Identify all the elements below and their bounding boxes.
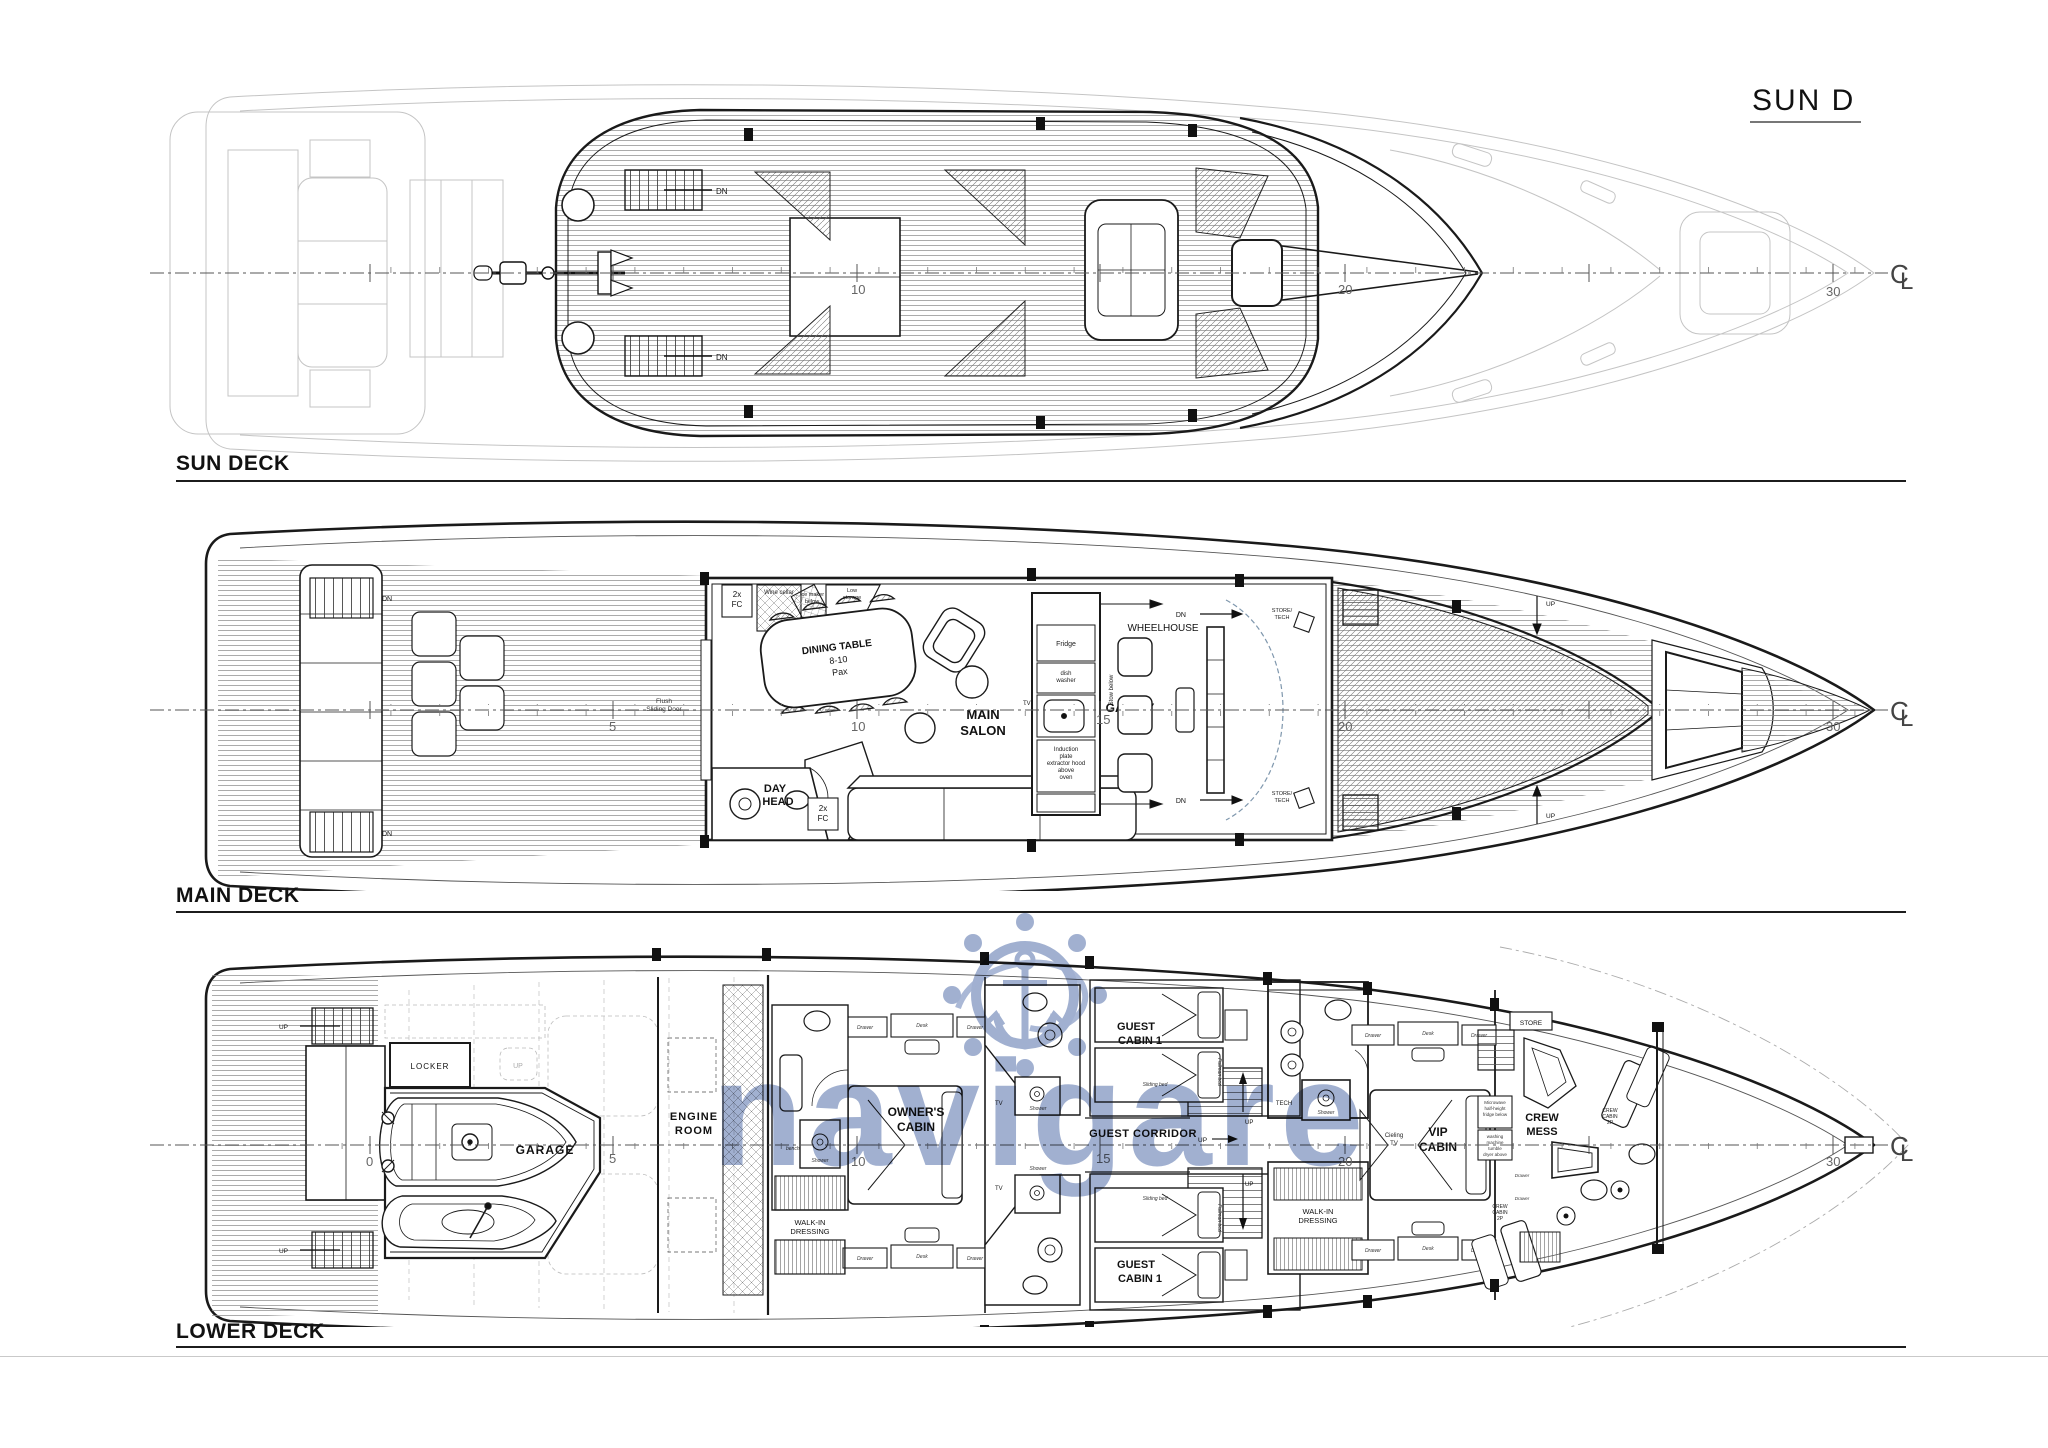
induction-label: oven — [1059, 775, 1072, 781]
tick-label: 30 — [1826, 284, 1840, 299]
day-head-label: DAY — [764, 783, 787, 795]
centerline-symbol: C L — [1890, 259, 1913, 295]
deck-plan-sheet: DN DN 10 20 30 C L SUN DECK — [0, 0, 2048, 1448]
svg-text:FC: FC — [818, 814, 829, 823]
main-deck-drawing: DN DN Flush Sliding Door 2x FC Wine cell… — [0, 495, 2048, 891]
tick-label: 5 — [609, 719, 616, 734]
svg-text:Drawer: Drawer — [1365, 1248, 1381, 1254]
svg-text:UP: UP — [279, 1248, 288, 1255]
up-label: UP — [1546, 813, 1555, 820]
wine-cellar-label: Wine cellar — [764, 590, 794, 596]
induction-label: extractor hood — [1047, 761, 1085, 767]
store-tech-label: STORE/ — [1272, 608, 1293, 614]
fc-label: FC — [732, 600, 743, 609]
tick-label: 30 — [1826, 719, 1840, 734]
ice-maker-label: Ice maker — [800, 592, 824, 598]
guest-cabin-label: CABIN 1 — [1118, 1273, 1162, 1285]
store-tech-label: TECH — [1275, 615, 1290, 621]
store-tech-label: STORE/ — [1272, 791, 1293, 797]
tick-label: 10 — [851, 719, 865, 734]
sun-deck-drawing: DN DN 10 20 30 C L — [0, 60, 2048, 462]
svg-text:2x: 2x — [819, 804, 827, 813]
lower-deck-title: LOWER DECK — [176, 1320, 325, 1344]
day-head-label: HEAD — [762, 796, 793, 808]
tick-label: 20 — [1338, 719, 1352, 734]
sun-dn-label: DN — [716, 187, 728, 196]
stow-below-label: Stow below — [1109, 674, 1115, 705]
main-dn-label: DN — [382, 596, 392, 603]
centerline-symbol: C L — [1890, 696, 1913, 732]
dn-label: DN — [1176, 612, 1186, 619]
up-label: UP — [1546, 601, 1555, 608]
store-tech-label: TECH — [1275, 798, 1290, 804]
dining-table-label: Pax — [832, 666, 849, 678]
guest-cabin-label: GUEST — [1117, 1259, 1155, 1271]
dn-label: DN — [1176, 798, 1186, 805]
svg-text:Flush: Flush — [656, 698, 672, 705]
svg-text:Drawer: Drawer — [857, 1256, 873, 1262]
dishwasher-label: washer — [1055, 678, 1075, 684]
svg-text:Desk: Desk — [916, 1254, 928, 1260]
induction-label: Induction — [1054, 747, 1078, 753]
wheelhouse-label: WHEELHOUSE — [1127, 623, 1198, 634]
fc-label: 2x — [733, 590, 741, 599]
main-salon-label: SALON — [960, 723, 1006, 738]
sun-deck-rule — [176, 480, 1906, 482]
low-storage-label: Low — [847, 588, 857, 594]
svg-text:L: L — [1900, 268, 1913, 295]
tick-label: 10 — [851, 282, 865, 297]
svg-text:DRESSING: DRESSING — [790, 1227, 829, 1236]
tick-label: 15 — [1096, 712, 1110, 727]
fridge-label: Fridge — [1056, 641, 1076, 648]
dishwasher-label: dish — [1060, 671, 1071, 677]
sun-dn-label: DN — [716, 353, 728, 362]
fc-box-aft: 2x FC — [808, 798, 838, 830]
svg-text:L: L — [1900, 705, 1913, 732]
svg-text:Drawer: Drawer — [967, 1256, 983, 1262]
induction-label: plate — [1059, 754, 1073, 760]
navigare-watermark: navigare — [0, 895, 2048, 1225]
lower-deck-rule — [176, 1346, 1906, 1348]
main-dn-label: DN — [382, 831, 392, 838]
tick-label: 20 — [1338, 282, 1352, 297]
induction-label: above — [1058, 768, 1075, 774]
page-bottom-rule — [0, 1356, 2048, 1357]
sun-deck-title: SUN DECK — [176, 452, 290, 476]
plan-code: SUN D — [1750, 84, 1861, 123]
watermark-brand: navigare — [712, 1029, 1369, 1197]
svg-text:Desk: Desk — [1422, 1246, 1434, 1252]
